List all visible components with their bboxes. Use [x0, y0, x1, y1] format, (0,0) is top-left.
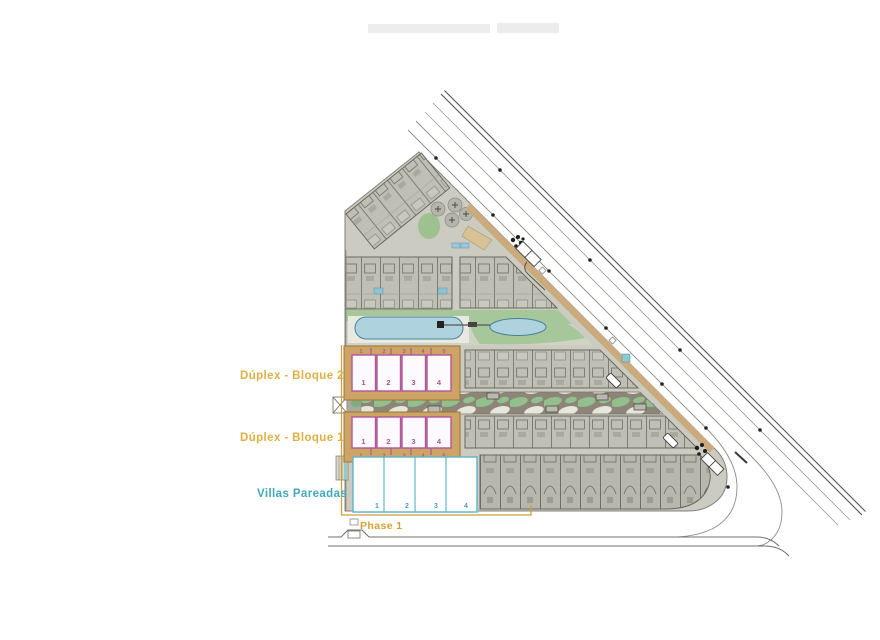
label-duplex-bloque-2: Dúplex - Bloque 2	[240, 370, 344, 382]
building-townhouses	[480, 455, 710, 509]
svg-text:3: 3	[434, 503, 438, 510]
crossing-island	[348, 531, 360, 538]
site-plan-canvas: 1 2 3 4 5 1 2 3 4 1 2 3 4	[0, 0, 880, 640]
duplex-bloque-1: 1 2 3 4 1 2 3 4 5	[344, 412, 460, 462]
label-duplex-bloque-1: Dúplex - Bloque 1	[240, 432, 344, 444]
building-row-3	[465, 416, 697, 448]
svg-text:2: 2	[382, 349, 385, 355]
label-phase-1: Phase 1	[360, 520, 403, 532]
svg-text:1: 1	[361, 378, 365, 387]
villa-unit-cell-3[interactable]	[415, 457, 446, 512]
main-pool	[355, 317, 463, 339]
svg-text:1: 1	[375, 503, 379, 510]
villas-pareadas-block: 1 2 3 4	[353, 457, 477, 512]
site-plan-drawing: 1 2 3 4 5 1 2 3 4 1 2 3 4	[0, 0, 880, 640]
svg-text:3: 3	[411, 378, 415, 387]
svg-text:1: 1	[361, 437, 365, 446]
svg-text:3: 3	[411, 437, 415, 446]
svg-text:2: 2	[386, 378, 390, 387]
boundary-marker	[350, 519, 358, 525]
villa-unit-cell-2[interactable]	[384, 457, 415, 512]
duplex-bloque-2: 1 2 3 4 5 1 2 3 4	[344, 346, 460, 400]
svg-text:1: 1	[359, 349, 362, 355]
svg-text:2: 2	[386, 437, 390, 446]
pool-bridge	[437, 321, 444, 328]
villa-unit-cell-4[interactable]	[446, 457, 477, 512]
label-villas-pareadas: Villas Pareadas	[257, 488, 347, 500]
svg-text:4: 4	[464, 503, 468, 510]
faint-print-artifacts	[368, 23, 559, 33]
villa-unit-cell-1[interactable]	[353, 457, 384, 512]
pool-area	[346, 310, 593, 345]
bottom-road	[328, 530, 789, 556]
secondary-pool	[490, 319, 546, 336]
svg-text:5: 5	[442, 349, 445, 355]
svg-text:3: 3	[402, 349, 405, 355]
svg-text:2: 2	[405, 503, 409, 510]
